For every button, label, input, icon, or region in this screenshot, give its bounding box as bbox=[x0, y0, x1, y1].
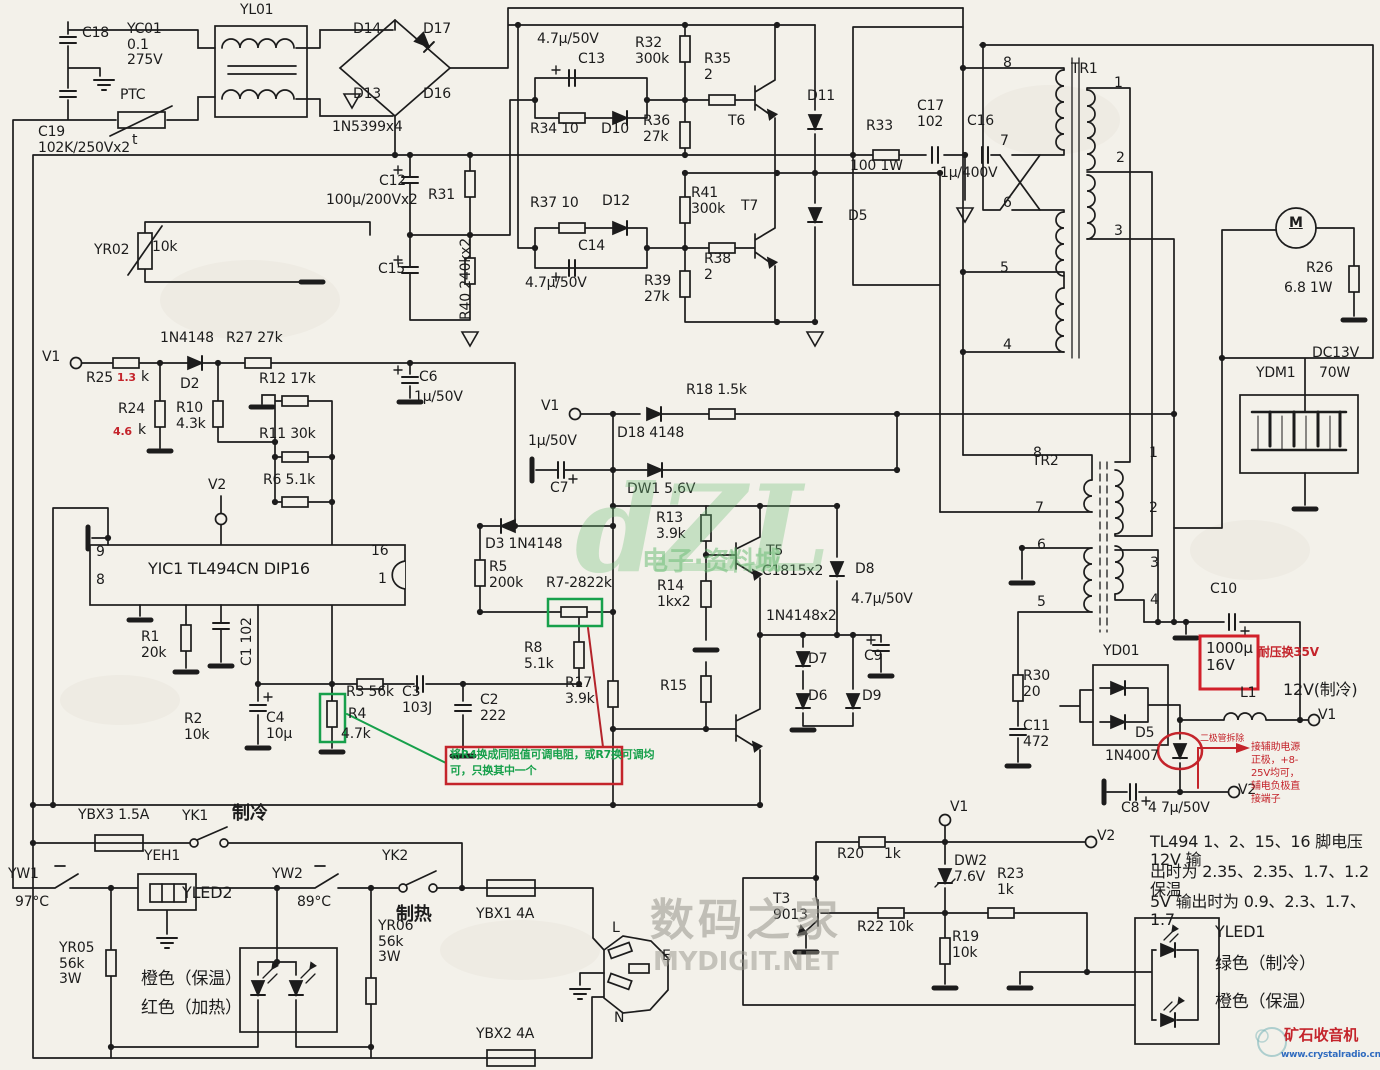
bridge-type: 1N5399x4 bbox=[332, 120, 403, 136]
res-r1: R1 20k bbox=[141, 630, 166, 661]
led-yled2-red: 红色（加热） bbox=[141, 999, 242, 1018]
cap-c18: C18 bbox=[82, 26, 109, 42]
diode-d13: D13 bbox=[353, 87, 381, 103]
ptc-t: t bbox=[132, 133, 137, 149]
plug-n: N bbox=[614, 1011, 624, 1027]
cap-c15: C15 bbox=[378, 262, 405, 278]
note-r4-swap-2: 可，只换其中一个 bbox=[450, 765, 536, 777]
watermark-dzl: dZL bbox=[575, 470, 830, 590]
diode-d12: D12 bbox=[602, 194, 630, 210]
ptc: PTC bbox=[120, 88, 145, 104]
logo-crystalradio-url: www.crystalradio.cn bbox=[1281, 1050, 1380, 1060]
diode-d9: D9 bbox=[862, 689, 881, 705]
cap-c14-val: 4.7µ/50V bbox=[525, 276, 587, 292]
tr2-pin7: 7 bbox=[1035, 501, 1044, 517]
note-aux-5: 接端子 bbox=[1251, 794, 1280, 805]
cap-c9: C9 bbox=[864, 649, 882, 665]
tr1-pin8: 8 bbox=[1003, 56, 1012, 72]
led-yled1-orange: 橙色（保温） bbox=[1215, 993, 1316, 1012]
res-yr06: YR06 56k 3W bbox=[378, 919, 413, 966]
thermo-yw2: YW2 bbox=[272, 867, 303, 883]
res-r6: R6 5.1k bbox=[263, 473, 315, 489]
plug-l: L bbox=[612, 921, 620, 937]
diode-d16: D16 bbox=[423, 87, 451, 103]
note-r4-swap-1: 将R4换成同阻值可调电阻，或R7换可调均 bbox=[450, 749, 654, 761]
diode-d2-type: 1N4148 bbox=[160, 331, 214, 347]
term-v2-bot: V2 bbox=[1097, 829, 1115, 845]
term-v1-mid: V1 bbox=[541, 399, 559, 415]
diode-d5-top: D5 bbox=[848, 209, 867, 225]
ic-pin1: 1 bbox=[378, 572, 387, 588]
thermo-yw1-val: 97°C bbox=[15, 895, 49, 911]
tr1-pin6: 6 bbox=[1003, 196, 1012, 212]
cap-c8: C8 bbox=[1121, 801, 1139, 817]
tr1-pin3: 3 bbox=[1114, 224, 1123, 240]
heater-yeh1: YEH1 bbox=[144, 849, 180, 865]
led-yled1-green: 绿色（制冷） bbox=[1215, 955, 1316, 974]
res-r5: R5 200k bbox=[489, 560, 523, 591]
note-aux-1: 接辅助电源 bbox=[1251, 742, 1300, 753]
ic-pin8: 8 bbox=[96, 573, 105, 589]
res-r27: R27 27k bbox=[226, 331, 283, 347]
thermo-yw1: YW1 bbox=[8, 867, 39, 883]
tr1-pin5: 5 bbox=[1000, 261, 1009, 277]
diode-d8: D8 bbox=[855, 562, 874, 578]
tr1-pin1: 1 bbox=[1114, 76, 1123, 92]
ic-pin9: 9 bbox=[96, 545, 105, 561]
cap-c1: C1 102 bbox=[240, 617, 256, 666]
res-r22: R22 10k bbox=[857, 920, 914, 936]
res-r32: R32 300k bbox=[635, 36, 669, 67]
logo-crystalradio: 矿石收音机 bbox=[1284, 1027, 1358, 1044]
diode-pair-type: 1N4148x2 bbox=[766, 609, 837, 625]
res-r20: R20 bbox=[837, 847, 864, 863]
cap-c16: C16 bbox=[967, 114, 994, 130]
res-r4-val: 4.7k bbox=[341, 727, 371, 743]
cap-c7-val: 1µ/50V bbox=[528, 434, 577, 450]
res-r38: R38 2 bbox=[704, 252, 731, 283]
diode-d18: D18 4148 bbox=[617, 426, 684, 442]
tr1-pin2: 2 bbox=[1116, 151, 1125, 167]
res-r4: R4 bbox=[348, 707, 366, 723]
led-yled2: YLED2 bbox=[182, 884, 232, 902]
cap-c17: C17 102 bbox=[917, 99, 944, 130]
tr1-pin7: 7 bbox=[1000, 134, 1009, 150]
diode-d17: D17 bbox=[423, 22, 451, 38]
res-yr05: YR05 56k 3W bbox=[59, 941, 94, 988]
cap-c13-val: 4.7µ/50V bbox=[537, 32, 599, 48]
watermark-mydigit: 数码之家 bbox=[650, 896, 842, 945]
led-yled2-orange: 橙色（保温） bbox=[141, 970, 242, 989]
schematic-labels: C18YC01 0.1 275VPTCtC19 102K/250Vx2YL01D… bbox=[0, 0, 1380, 1070]
res-r26-val: 6.8 1W bbox=[1284, 281, 1332, 297]
cap-c8-val: 4 7µ/50V bbox=[1148, 801, 1210, 817]
res-r30: R30 20 bbox=[1023, 669, 1050, 700]
choke-yl01: YL01 bbox=[240, 3, 273, 19]
diode-d10: D10 bbox=[601, 122, 629, 138]
res-r34: R34 10 bbox=[530, 122, 579, 138]
tr2-pin4: 4 bbox=[1150, 593, 1159, 609]
res-r8: R8 5.1k bbox=[524, 641, 554, 672]
motor-m: M bbox=[1289, 216, 1303, 232]
res-r10: R10 4.3k bbox=[176, 401, 206, 432]
rect-yd01: YD01 bbox=[1103, 644, 1139, 660]
diode-d11: D11 bbox=[807, 89, 835, 105]
res-r23: R23 1k bbox=[997, 867, 1024, 898]
cap-c10: C10 bbox=[1210, 582, 1237, 598]
switch-yk1: YK1 bbox=[182, 809, 208, 825]
peltier-ydm1: YDM1 bbox=[1256, 366, 1296, 382]
res-r24: R24 bbox=[118, 402, 145, 418]
cap-c9-val: 4.7µ/50V bbox=[851, 592, 913, 608]
term-v1-out: V1 bbox=[1318, 708, 1336, 724]
cap-c7: C7 bbox=[550, 481, 568, 497]
fuse-ybx3: YBX3 1.5A bbox=[78, 808, 149, 824]
res-r15: R15 bbox=[660, 679, 687, 695]
res-r20-val: 1k bbox=[884, 847, 901, 863]
cap-c12-val: 100µ/200Vx2 bbox=[326, 193, 418, 209]
res-r25-k: k bbox=[141, 370, 149, 386]
transistor-t6: T6 bbox=[728, 114, 745, 130]
cap-yc01: YC01 0.1 275V bbox=[127, 22, 163, 69]
res-r25-val: 1.3 bbox=[117, 372, 136, 384]
thermistor-yr02: YR02 bbox=[94, 243, 129, 259]
tr2-pin6: 6 bbox=[1037, 538, 1046, 554]
res-r18: R18 1.5k bbox=[686, 383, 747, 399]
note-35v: 耐压换35V bbox=[1258, 646, 1319, 659]
fuse-ybx2: YBX2 4A bbox=[476, 1027, 534, 1043]
res-r26: R26 bbox=[1306, 261, 1333, 277]
mode-cool: 制冷 bbox=[232, 804, 268, 824]
inductor-l1: L1 bbox=[1240, 686, 1256, 702]
note-diode-removed: 二极管拆除 bbox=[1200, 734, 1244, 744]
res-r33: R33 bbox=[866, 119, 893, 135]
res-r24-k: k bbox=[138, 423, 146, 439]
res-r19: R19 10k bbox=[952, 930, 979, 961]
note-aux-4: 辅电负极直 bbox=[1251, 781, 1300, 792]
res-r37: R37 10 bbox=[530, 196, 579, 212]
watermark-mydigit-url: MYDIGIT.NET bbox=[653, 948, 839, 977]
res-r3: R3 56k bbox=[346, 685, 394, 701]
cap-c14: C14 bbox=[578, 239, 605, 255]
transistor-t7: T7 bbox=[741, 199, 758, 215]
out-12v: 12V(制冷) bbox=[1283, 681, 1357, 699]
thermo-yw2-val: 89°C bbox=[297, 895, 331, 911]
tr1-pin4: 4 bbox=[1003, 338, 1012, 354]
res-r36: R36 27k bbox=[643, 114, 670, 145]
cap-c4: C4 10µ bbox=[266, 711, 292, 742]
res-r25: R25 bbox=[86, 371, 113, 387]
res-r31: R31 bbox=[428, 188, 455, 204]
zener-dw2: DW2 7.6V bbox=[954, 854, 987, 885]
cap-c3: C3 103J bbox=[402, 685, 432, 716]
term-v1-left: V1 bbox=[42, 350, 60, 366]
term-v2-left: V2 bbox=[208, 478, 226, 494]
diode-d5-type: 1N4007 bbox=[1105, 749, 1159, 765]
peltier-watt: 70W bbox=[1319, 366, 1350, 382]
tr2-pin3: 3 bbox=[1150, 556, 1159, 572]
note-aux-2: 正极，+8- bbox=[1251, 755, 1298, 766]
cap-c11: C11 472 bbox=[1023, 719, 1050, 750]
tr2-pin8: 8 bbox=[1033, 446, 1042, 462]
res-r39: R39 27k bbox=[644, 274, 671, 305]
ic-yic1: YIC1 TL494CN DIP16 bbox=[148, 560, 310, 578]
diode-d7: D7 bbox=[808, 652, 827, 668]
res-r35: R35 2 bbox=[704, 52, 731, 83]
res-r33-val: 100 1W bbox=[850, 159, 903, 175]
cap-c16-val: 1µ/400V bbox=[940, 166, 997, 182]
cap-c19: C19 102K/250Vx2 bbox=[38, 125, 130, 156]
thermistor-yr02-val: 10k bbox=[152, 240, 177, 256]
transformer-tr1: TR1 bbox=[1071, 62, 1098, 78]
res-r12: R12 17k bbox=[259, 372, 316, 388]
diode-d6: D6 bbox=[808, 689, 827, 705]
cap-c6-val: 1µ/50V bbox=[414, 390, 463, 406]
res-r11: R11 30k bbox=[259, 427, 316, 443]
cap-c6: C6 bbox=[419, 370, 437, 386]
cap-1000u: 1000µ 16V bbox=[1206, 640, 1253, 674]
tr2-pin5: 5 bbox=[1037, 595, 1046, 611]
diode-d2: D2 bbox=[180, 377, 199, 393]
res-r17: R17 3.9k bbox=[565, 676, 595, 707]
res-r2: R2 10k bbox=[184, 712, 209, 743]
cap-c2: C2 222 bbox=[480, 693, 506, 724]
diode-d14: D14 bbox=[353, 22, 381, 38]
diode-d3: D3 1N4148 bbox=[485, 537, 562, 553]
cap-c13: C13 bbox=[578, 52, 605, 68]
fuse-ybx1: YBX1 4A bbox=[476, 907, 534, 923]
term-v1-bot: V1 bbox=[950, 800, 968, 816]
switch-yk2: YK2 bbox=[382, 849, 408, 865]
peltier-volt: DC13V bbox=[1312, 346, 1359, 362]
res-r41: R41 300k bbox=[691, 186, 725, 217]
cap-c12: C12 bbox=[379, 174, 406, 190]
diode-d5-bot: D5 bbox=[1135, 726, 1154, 742]
led-yled1: YLED1 bbox=[1215, 923, 1265, 941]
res-r40: R40 240kx2 bbox=[459, 238, 475, 320]
res-r24-val: 4.6 bbox=[113, 426, 132, 438]
note-aux-3: 25V均可， bbox=[1251, 768, 1299, 779]
schematic-page: C18YC01 0.1 275VPTCtC19 102K/250Vx2YL01D… bbox=[0, 0, 1380, 1070]
tr2-pin1: 1 bbox=[1149, 446, 1158, 462]
ic-pin16: 16 bbox=[371, 544, 388, 560]
tr2-pin2: 2 bbox=[1149, 501, 1158, 517]
